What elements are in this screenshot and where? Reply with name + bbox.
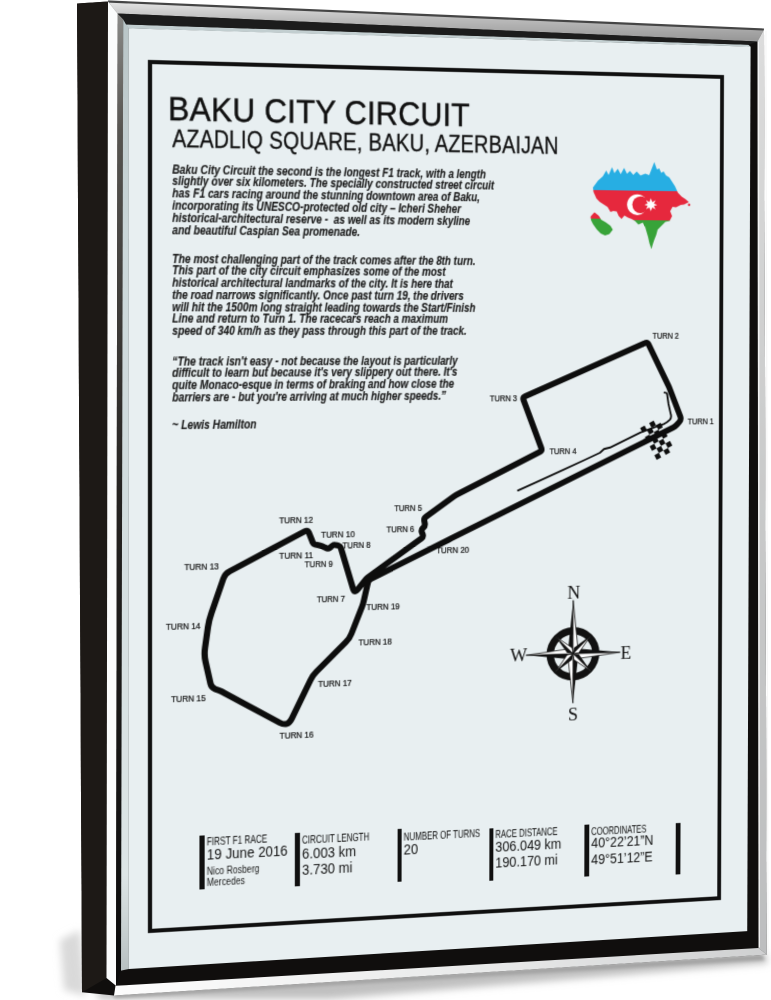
svg-text:TURN 16: TURN 16 (280, 730, 314, 742)
svg-text:TURN 10: TURN 10 (321, 529, 355, 540)
svg-text:TURN 12: TURN 12 (279, 515, 313, 526)
svg-text:TURN 20: TURN 20 (436, 545, 469, 556)
svg-text:N: N (567, 583, 580, 603)
svg-text:TURN 2: TURN 2 (652, 331, 679, 341)
svg-text:E: E (620, 643, 631, 663)
svg-text:S: S (568, 705, 578, 725)
svg-text:TURN 8: TURN 8 (343, 540, 371, 551)
svg-text:TURN 13: TURN 13 (184, 561, 219, 572)
svg-text:TURN 7: TURN 7 (317, 594, 345, 605)
svg-text:TURN 15: TURN 15 (171, 693, 206, 705)
svg-text:TURN 3: TURN 3 (490, 394, 517, 404)
svg-text:TURN 1: TURN 1 (688, 417, 714, 427)
svg-text:W: W (510, 646, 528, 666)
svg-text:TURN 5: TURN 5 (394, 503, 422, 514)
svg-text:TURN 4: TURN 4 (550, 447, 577, 458)
svg-text:TURN 17: TURN 17 (318, 678, 352, 690)
svg-text:TURN 19: TURN 19 (366, 602, 400, 613)
svg-text:TURN 18: TURN 18 (358, 637, 392, 648)
svg-text:TURN 6: TURN 6 (386, 525, 414, 536)
svg-text:TURN 9: TURN 9 (305, 559, 333, 570)
svg-text:TURN 14: TURN 14 (166, 621, 201, 633)
